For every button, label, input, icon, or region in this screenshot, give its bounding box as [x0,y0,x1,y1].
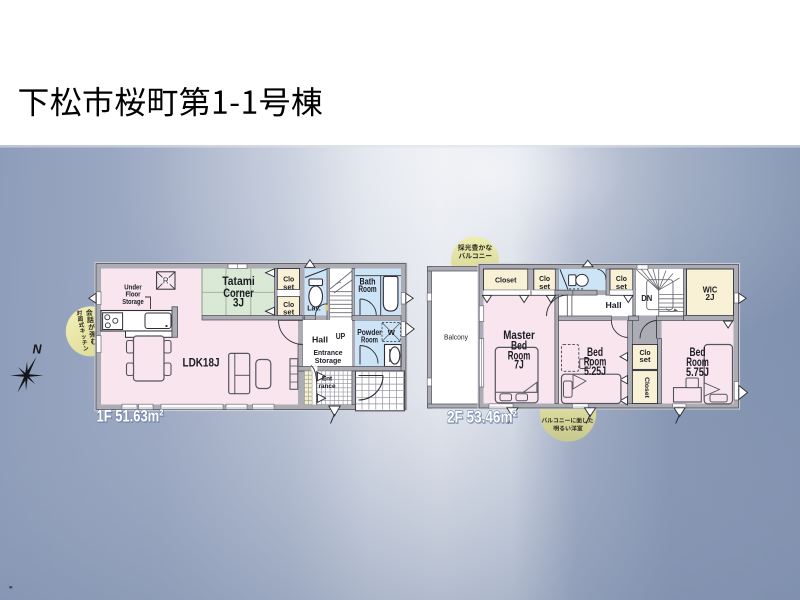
svg-text:Room: Room [361,336,378,345]
svg-text:Lav.: Lav. [307,306,321,313]
svg-text:rance: rance [318,383,335,390]
svg-text:set: set [539,282,550,291]
svg-text:N: N [33,343,43,357]
svg-text:R: R [163,277,169,286]
svg-text:Closet: Closet [643,377,650,399]
svg-text:Under: Under [124,284,142,291]
svg-text:2J: 2J [706,292,715,302]
svg-text:7J: 7J [514,358,524,372]
svg-text:set: set [283,282,294,291]
svg-text:5.75J: 5.75J [686,365,709,379]
svg-text:5.25J: 5.25J [584,364,606,378]
svg-text:Storage: Storage [315,356,342,365]
svg-text:Ent: Ent [322,376,333,383]
svg-text:Floor: Floor [126,292,141,299]
svg-text:UP: UP [336,332,346,341]
svg-text:3J: 3J [233,296,244,310]
svg-text:set: set [616,282,627,291]
svg-text:W: W [388,328,396,337]
svg-text:2F 53.46m²: 2F 53.46m² [447,408,517,427]
svg-text:set: set [640,355,652,364]
svg-text:1F 51.63m²: 1F 51.63m² [97,407,164,426]
svg-text:DN: DN [641,294,652,303]
svg-text:Balcony: Balcony [444,335,468,342]
svg-text:Storage: Storage [122,299,144,306]
svg-text:Room: Room [358,284,376,294]
svg-text:set: set [283,308,294,317]
svg-text:Hall: Hall [606,301,622,310]
svg-text:Closet: Closet [495,276,517,285]
svg-text:Hall: Hall [312,335,328,344]
svg-text:LDK18J: LDK18J [183,355,220,369]
